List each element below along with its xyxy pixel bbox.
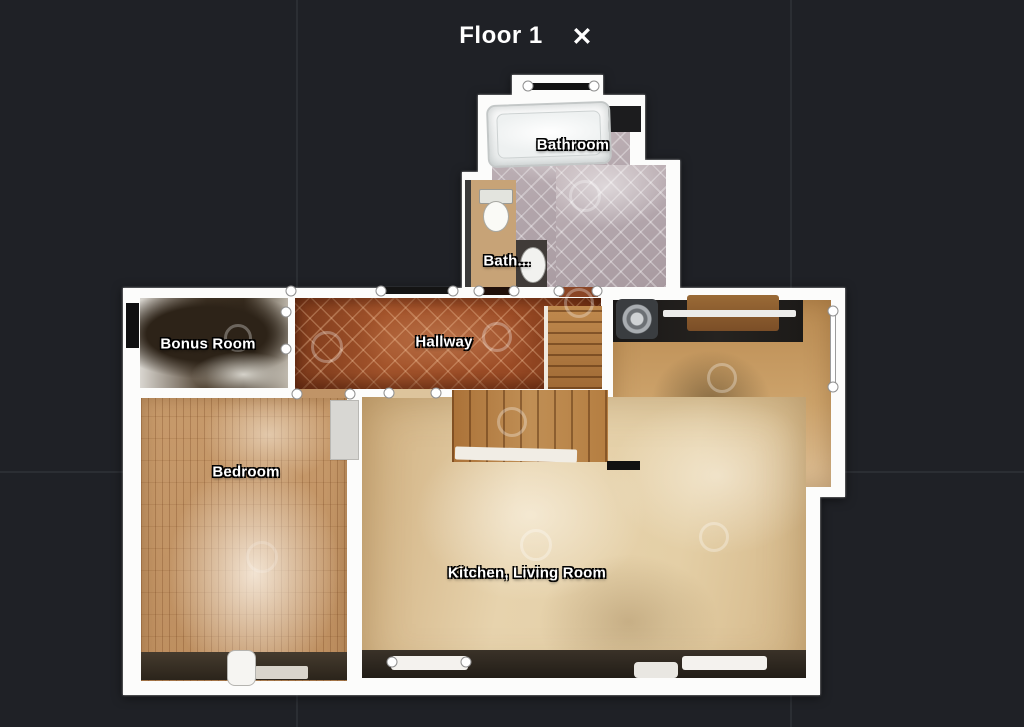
bedroom-door-opening (299, 389, 350, 398)
bedroom-fixture (227, 650, 256, 686)
door-node (384, 388, 395, 399)
floorplan-viewer: Floor 1 ✕ (0, 0, 1024, 727)
room-bedroom[interactable] (141, 398, 347, 681)
door-node (286, 286, 297, 297)
bonus-window (126, 303, 139, 348)
door-node (345, 389, 356, 400)
sweep-ring (564, 288, 594, 318)
door-node (461, 657, 472, 668)
stairs-upper (548, 306, 602, 389)
door-node (828, 382, 839, 393)
door-node (281, 344, 292, 355)
kitchen-threshold (607, 461, 640, 470)
stove-burner (616, 299, 658, 339)
sweep-ring (246, 541, 278, 573)
sweep-ring (699, 522, 729, 552)
door-node (292, 389, 303, 400)
living-window-left (391, 656, 468, 670)
door-node (509, 286, 520, 297)
bedroom-closet (330, 400, 359, 460)
room-bathroom-ext[interactable] (556, 165, 666, 287)
door-node (431, 388, 442, 399)
living-opening (390, 389, 435, 398)
living-window-right (682, 656, 767, 670)
door-node (281, 307, 292, 318)
door-node (554, 286, 565, 297)
door-node (474, 286, 485, 297)
bathroom-top-window-bar (527, 83, 595, 90)
door-node (387, 657, 398, 668)
door-node (376, 286, 387, 297)
door-node (448, 286, 459, 297)
door-node (589, 81, 600, 92)
sweep-ring (311, 331, 343, 363)
hallway-exterior-window-bar (381, 287, 453, 294)
bedroom-window (255, 666, 308, 679)
stairs-stringer (544, 306, 548, 389)
door-node (592, 286, 603, 297)
sweep-ring (497, 407, 527, 437)
room-bonus[interactable] (140, 298, 288, 388)
kitchen-shelf (663, 310, 796, 317)
door-node (523, 81, 534, 92)
sweep-ring (520, 529, 552, 561)
living-bottom-object (634, 662, 678, 678)
pedestal-sink (520, 247, 546, 283)
sweep-ring (224, 324, 252, 352)
door-node (828, 306, 839, 317)
sweep-ring (482, 322, 512, 352)
kitchen-window-bar (831, 313, 835, 386)
sweep-ring (707, 363, 737, 393)
toilet-bowl (483, 201, 509, 232)
bathtub (486, 101, 612, 168)
sweep-ring (569, 180, 601, 212)
